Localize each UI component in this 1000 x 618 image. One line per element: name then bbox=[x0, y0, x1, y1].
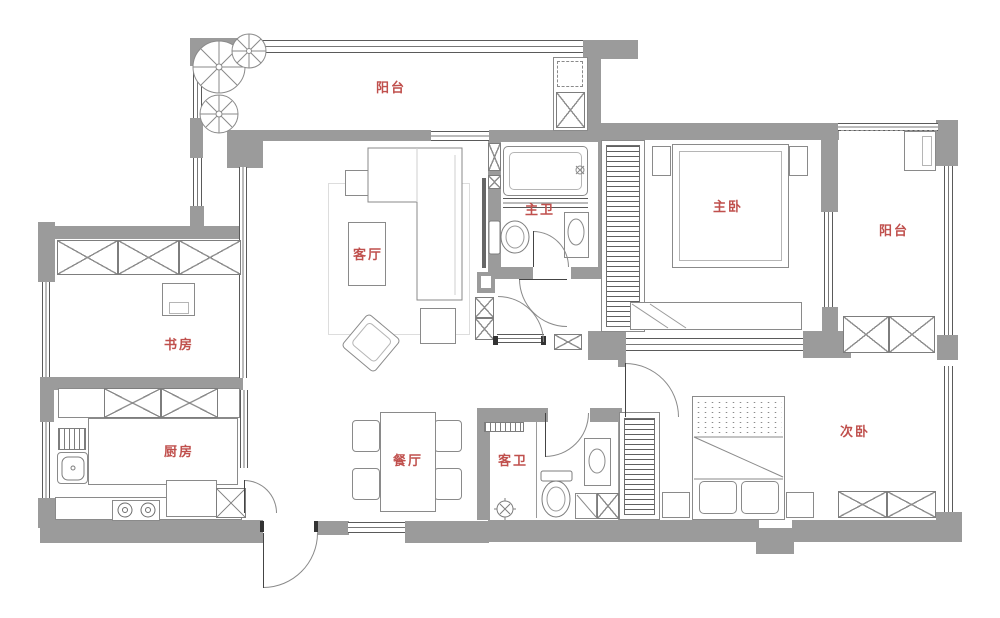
room-label-balcony-top: 阳台 bbox=[371, 80, 411, 96]
burner-icon bbox=[118, 503, 155, 517]
toilet-icon bbox=[541, 471, 572, 517]
sofa bbox=[368, 148, 462, 300]
bed-fold-line bbox=[694, 437, 783, 479]
room-label-master-bedroom: 主卧 bbox=[708, 199, 748, 215]
faucet-icon bbox=[576, 166, 584, 174]
room-label-balcony-right: 阳台 bbox=[874, 223, 914, 239]
room-label-secondary-bedroom: 次卧 bbox=[835, 424, 875, 440]
room-label-study: 书房 bbox=[159, 337, 199, 353]
toilet-icon bbox=[489, 221, 529, 254]
room-label-dining-room: 餐厅 bbox=[388, 453, 428, 469]
vanity-basin-icon bbox=[568, 219, 605, 473]
plant-icon bbox=[193, 34, 266, 133]
room-label-master-bathroom: 主卫 bbox=[520, 202, 560, 218]
floor-plan: 阳台 客厅 主卫 主卧 阳台 书房 厨房 餐厅 客卫 次卧 bbox=[0, 0, 1000, 618]
sink-basin-icon bbox=[62, 457, 84, 480]
shower-diagonal bbox=[577, 495, 596, 517]
lounge-chair-icon bbox=[341, 313, 400, 372]
room-label-kitchen: 厨房 bbox=[159, 444, 199, 460]
room-label-guest-bathroom: 客卫 bbox=[493, 453, 533, 469]
floor-drain-icon bbox=[494, 498, 516, 520]
bench-lines bbox=[632, 304, 686, 328]
plan-linework bbox=[0, 0, 1000, 618]
room-label-living-room: 客厅 bbox=[348, 247, 388, 263]
